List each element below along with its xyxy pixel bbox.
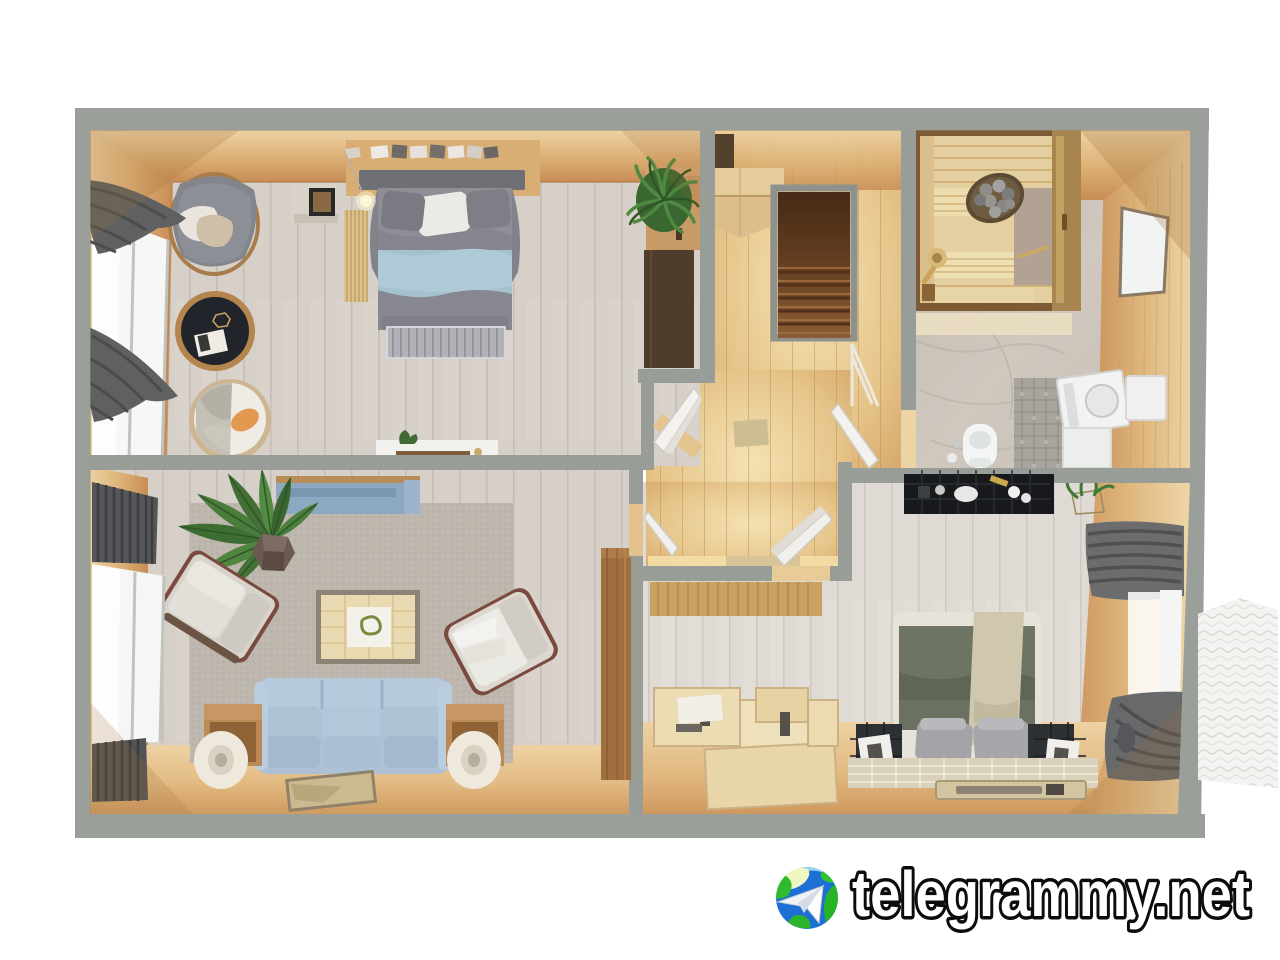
svg-text:telegrammy.net: telegrammy.net: [852, 858, 1250, 930]
